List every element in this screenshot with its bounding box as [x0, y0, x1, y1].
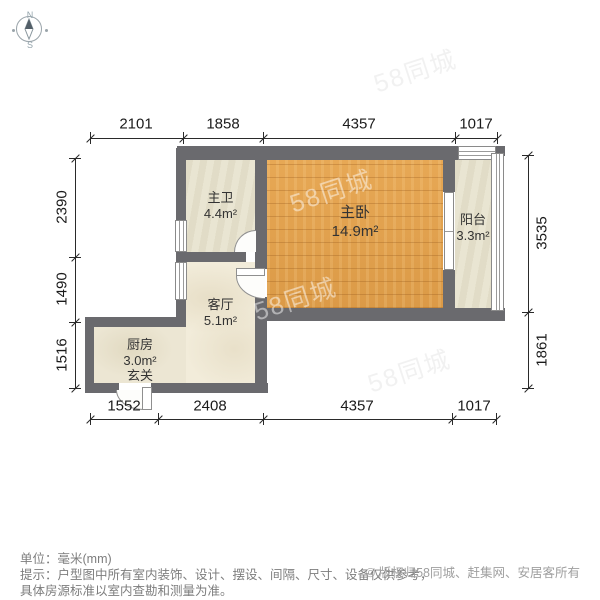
room-label-kitchen: 厨房 3.0m²	[94, 337, 186, 370]
wall-bedroom-balcony-upper	[443, 148, 455, 192]
dim-label-left-2: 1490	[54, 272, 71, 305]
entrance-door-leaf	[142, 387, 152, 410]
room-name: 主卧	[267, 204, 443, 223]
wall-bathroom-bedroom	[255, 148, 267, 252]
room-name: 玄关	[94, 368, 186, 384]
dim-label-top-2: 1858	[206, 116, 239, 133]
room-area: 3.3m²	[449, 228, 497, 244]
dim-label-top-3: 4357	[342, 116, 375, 133]
room-area: 4.4m²	[186, 206, 255, 222]
wall-bedroom-bottom	[255, 308, 505, 321]
dim-label-bottom-2: 2408	[193, 398, 226, 415]
bathroom-window	[175, 220, 187, 252]
room-label-foyer: 玄关	[94, 368, 186, 384]
footer-copyright: © 版权归58同城、赶集网、安居客所有	[366, 562, 580, 581]
dimension-line-left	[75, 158, 76, 388]
wall-kitchen-left	[85, 317, 94, 393]
wall-bathroom-bottom	[176, 252, 246, 262]
room-label-livingroom: 客厅 5.1m²	[186, 297, 255, 330]
wall-living-right-upper	[255, 252, 267, 269]
bedroom-door-leaf	[236, 268, 265, 276]
footer-tip-line2: 具体房源标准以室内查勘和测量为准。	[20, 580, 233, 599]
dim-label-bottom-3: 4357	[340, 398, 373, 415]
dimension-line-right	[528, 155, 529, 388]
wall-left-upper	[176, 148, 186, 220]
room-name: 厨房	[94, 337, 186, 353]
compass-needle-icon	[12, 12, 48, 48]
dim-label-right-2: 1861	[534, 333, 551, 366]
watermark: 58同城	[363, 340, 456, 401]
watermark: 58同城	[369, 40, 462, 101]
wall-top	[177, 146, 460, 160]
dimension-line-top	[90, 138, 498, 139]
room-label-master-bath: 主卫 4.4m²	[186, 190, 255, 223]
dim-label-right-1: 3535	[534, 216, 551, 249]
wall-bottom-right	[151, 383, 268, 393]
dim-label-bottom-1: 1552	[107, 398, 140, 415]
dim-label-bottom-4: 1017	[457, 398, 490, 415]
wall-kitchen-top	[85, 317, 186, 327]
room-area: 14.9m²	[267, 223, 443, 242]
dimension-line-bottom	[90, 419, 497, 420]
room-area: 5.1m²	[186, 313, 255, 329]
room-label-balcony: 阳台 3.3m²	[449, 212, 497, 245]
room-label-master-bedroom: 主卧 14.9m²	[267, 204, 443, 242]
dim-label-top-1: 2101	[119, 116, 152, 133]
room-name: 客厅	[186, 297, 255, 313]
room-name: 主卫	[186, 190, 255, 206]
dim-label-left-1: 2390	[54, 190, 71, 223]
floorplan-page: { "compass": { "north": "N", "south": "S…	[0, 0, 600, 600]
livingroom-window	[175, 262, 187, 300]
compass: N S	[12, 12, 48, 48]
dim-label-left-3: 1516	[54, 338, 71, 371]
room-name: 阳台	[449, 212, 497, 228]
wall-bottom-left	[85, 383, 119, 393]
dim-label-top-4: 1017	[459, 116, 492, 133]
